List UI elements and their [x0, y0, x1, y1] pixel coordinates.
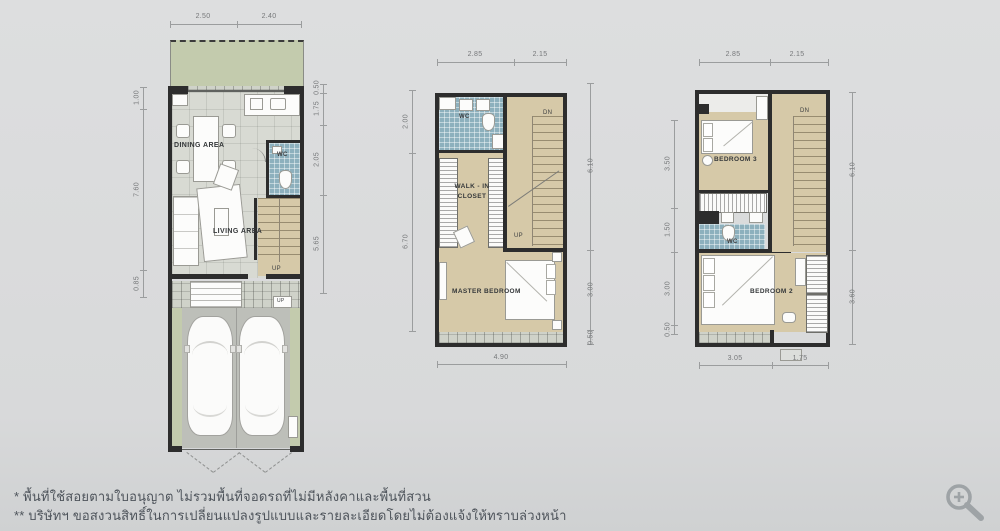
entry-up-label: UP: [277, 298, 285, 304]
dim-label: 2.00: [403, 109, 410, 135]
stairs: [533, 116, 563, 246]
stair-rail: [279, 198, 280, 262]
dim-tick: [409, 153, 416, 154]
tv-cabinet: [756, 96, 768, 120]
dim-label: 3.00: [588, 277, 595, 303]
dim-label: 2.15: [527, 51, 553, 58]
pillow: [703, 275, 715, 291]
dim-tick: [849, 250, 856, 251]
dim-label: 0.50: [588, 325, 595, 351]
dim-tick: [671, 252, 678, 253]
dim-label: 3.00: [665, 276, 672, 302]
room-label-wc: WC: [459, 114, 470, 120]
stairs-up-label: UP: [514, 233, 523, 239]
dim-label: 1.75: [787, 355, 813, 362]
vanity-dark: [699, 211, 719, 224]
dim-label: 1.00: [134, 85, 141, 111]
dim-line: [143, 87, 144, 298]
zoom-in-magnifier-icon: [938, 480, 990, 526]
pillow: [703, 123, 713, 137]
dim-line: [674, 120, 675, 335]
chair: [222, 124, 236, 138]
footnote-line-2: ** บริษัทฯ ขอสงวนสิทธิ์ในการเปลี่ยนแปลงร…: [14, 505, 567, 526]
corner-cabinet: [795, 258, 806, 286]
dim-tick: [671, 325, 678, 326]
dim-label: 2.15: [784, 51, 810, 58]
wall: [770, 330, 774, 347]
wc-sink: [721, 212, 734, 223]
balcony: [439, 332, 563, 343]
entry-steps: [190, 281, 242, 308]
dim-line: [699, 365, 829, 366]
pillow: [703, 138, 713, 152]
wall: [168, 274, 248, 279]
dim-label: 2.50: [190, 13, 216, 20]
dim-label: 6.10: [588, 153, 595, 179]
dim-tick: [320, 125, 327, 126]
dim-label: 0.85: [134, 271, 141, 297]
wardrobe: [806, 255, 828, 294]
dim-label: 7.60: [134, 177, 141, 203]
dim-label: 3.05: [722, 355, 748, 362]
dim-tick: [237, 21, 238, 28]
dim-line: [437, 364, 567, 365]
dim-line: [590, 83, 591, 345]
wc-washer: [459, 99, 473, 111]
dim-tick: [514, 59, 515, 66]
stairs-up-label: UP: [272, 266, 281, 272]
dim-label: 6.70: [403, 229, 410, 255]
stair-rail: [532, 116, 533, 246]
dresser: [439, 262, 447, 300]
dim-line: [412, 90, 413, 332]
zoom-in-button[interactable]: [938, 480, 990, 526]
wc-basin: [749, 212, 763, 223]
dim-label: 1.75: [314, 96, 321, 122]
dim-line: [170, 24, 302, 25]
toilet: [279, 170, 292, 189]
stairs-dn-label: DN: [543, 110, 552, 116]
dim-tick: [320, 93, 327, 94]
garage-bay-line: [236, 308, 237, 448]
pillow: [546, 280, 556, 295]
stairs-dn-label: DN: [800, 108, 809, 114]
nightstand: [552, 320, 562, 330]
balcony: [699, 332, 773, 343]
gate-swing: [238, 452, 265, 473]
sofa: [173, 196, 199, 266]
dim-tick: [140, 109, 147, 110]
floorplan-sheet: 2.50 2.40 DINING AREA WC: [0, 0, 1000, 531]
dim-label: 5.65: [314, 231, 321, 257]
dim-tick: [140, 270, 147, 271]
car: [187, 316, 233, 436]
stairs: [794, 116, 826, 246]
room-label-closet: WALK - IN CLOSET: [447, 182, 497, 202]
wall: [563, 93, 567, 347]
dim-label: 4.90: [488, 354, 514, 361]
car: [239, 316, 285, 436]
gate-swing: [265, 452, 292, 473]
wall: [266, 274, 304, 279]
dim-label: 3.60: [850, 284, 857, 310]
dim-tick: [587, 250, 594, 251]
wc-sink: [476, 99, 490, 111]
wall: [435, 343, 567, 347]
dim-tick: [320, 195, 327, 196]
dim-label: 2.05: [314, 147, 321, 173]
wall: [695, 343, 830, 347]
pillow: [703, 258, 715, 274]
room-label-living: LIVING AREA: [213, 228, 262, 235]
chair: [176, 124, 190, 138]
dim-tick: [671, 208, 678, 209]
room-label-master: MASTER BEDROOM: [452, 288, 521, 295]
gate-swing: [213, 452, 240, 473]
stool: [782, 312, 796, 323]
kitchen-sink: [270, 98, 286, 110]
room-label-wc: WC: [277, 152, 288, 158]
wardrobe: [699, 193, 767, 213]
nightstand: [552, 252, 562, 262]
pillow: [546, 264, 556, 279]
dining-table: [193, 116, 219, 182]
entry-nook: [439, 97, 456, 110]
cabinet: [172, 94, 188, 106]
dim-tick: [770, 59, 771, 66]
dim-label: 2.85: [720, 51, 746, 58]
garage-opening: [182, 449, 290, 450]
wall: [290, 446, 304, 452]
room-label-wc: WC: [727, 239, 738, 245]
dim-label: 1.50: [665, 217, 672, 243]
room-label-bedroom2: BEDROOM 2: [750, 288, 793, 295]
fan: [702, 155, 713, 166]
dim-label: 3.50: [665, 151, 672, 177]
dim-label: 0.50: [665, 317, 672, 343]
wall: [168, 446, 182, 452]
dim-line: [437, 62, 567, 63]
dim-label: 2.85: [462, 51, 488, 58]
dim-line: [323, 84, 324, 294]
meter-box: [288, 416, 298, 438]
stair-rail: [793, 116, 794, 246]
dim-label: 6.10: [850, 157, 857, 183]
dim-label: 2.40: [256, 13, 282, 20]
room-label-bedroom3: BEDROOM 3: [714, 156, 757, 163]
stove: [250, 98, 263, 110]
room-label-dining: DINING AREA: [174, 142, 224, 149]
wall: [170, 90, 302, 92]
pillow: [703, 292, 715, 308]
dim-tick: [772, 362, 773, 369]
gate-swing: [186, 452, 213, 473]
wardrobe: [806, 294, 828, 333]
footnote-line-1: * พื้นที่ใช้สอยตามใบอนุญาต ไม่รวมพื้นที่…: [14, 486, 431, 507]
chair: [176, 160, 190, 174]
toilet: [482, 113, 495, 131]
dim-line: [699, 62, 829, 63]
terrace: [170, 40, 304, 88]
garage-green-strip: [172, 308, 182, 448]
duct: [699, 104, 709, 114]
